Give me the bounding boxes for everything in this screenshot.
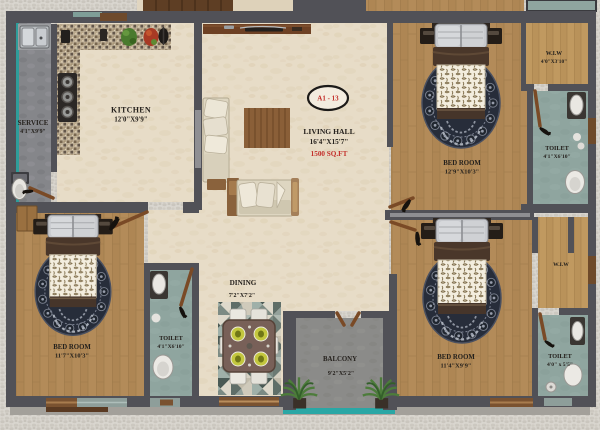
- svg-text:7'2"X7'2": 7'2"X7'2": [229, 293, 255, 299]
- svg-text:12'0"X9'9": 12'0"X9'9": [114, 117, 147, 124]
- svg-text:LIVING HALL: LIVING HALL: [303, 127, 354, 136]
- svg-text:BED ROOM: BED ROOM: [443, 160, 481, 167]
- svg-text:KITCHEN: KITCHEN: [111, 106, 151, 115]
- svg-text:4'1"X6'10": 4'1"X6'10": [157, 344, 184, 350]
- svg-text:TOILET: TOILET: [548, 353, 572, 360]
- svg-text:DINING: DINING: [230, 279, 257, 287]
- svg-text:BED ROOM: BED ROOM: [437, 354, 475, 361]
- svg-text:4'0"X3'10": 4'0"X3'10": [541, 59, 567, 65]
- svg-text:9'2"X5'2": 9'2"X5'2": [328, 371, 354, 377]
- svg-text:1500 SQ.FT: 1500 SQ.FT: [311, 150, 348, 158]
- svg-text:16'4"X15'7": 16'4"X15'7": [310, 138, 349, 146]
- svg-text:11'7"X10'3": 11'7"X10'3": [55, 353, 89, 360]
- svg-text:BED ROOM: BED ROOM: [53, 344, 91, 351]
- svg-text:TOILET: TOILET: [545, 145, 569, 152]
- svg-text:4'1"X9'9": 4'1"X9'9": [20, 129, 45, 135]
- svg-text:A1 - 13: A1 - 13: [317, 95, 339, 103]
- svg-text:11'4"X9'9": 11'4"X9'9": [441, 363, 472, 370]
- svg-text:4'0" x 5'5": 4'0" x 5'5": [547, 362, 573, 368]
- svg-text:SERVICE: SERVICE: [18, 119, 49, 127]
- svg-text:BALCONY: BALCONY: [323, 356, 357, 363]
- svg-text:W.I.W: W.I.W: [553, 262, 569, 268]
- svg-text:12'9"X10'3": 12'9"X10'3": [445, 169, 479, 176]
- svg-text:4'1"X6'10": 4'1"X6'10": [543, 154, 570, 160]
- svg-text:W.I.W: W.I.W: [546, 51, 562, 57]
- svg-text:TOILET: TOILET: [159, 335, 183, 342]
